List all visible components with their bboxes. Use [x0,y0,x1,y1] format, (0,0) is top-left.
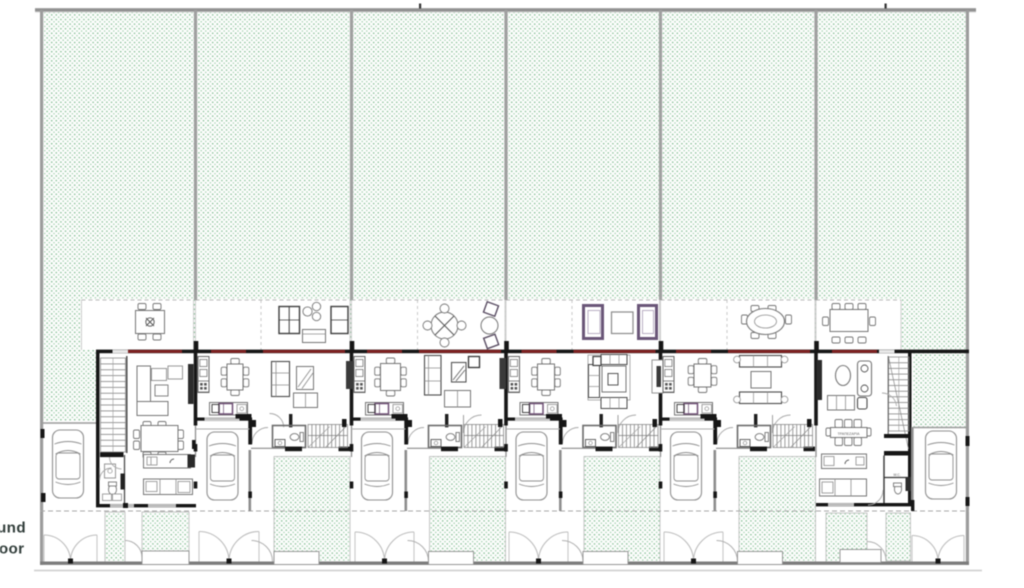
svg-text:TPAΠEZAPIA: TPAΠEZAPIA [837,432,860,436]
svg-text:Floor: Floor [0,541,25,558]
svg-text:W.C.: W.C. [893,473,900,477]
svg-text:Ground: Ground [0,520,26,537]
